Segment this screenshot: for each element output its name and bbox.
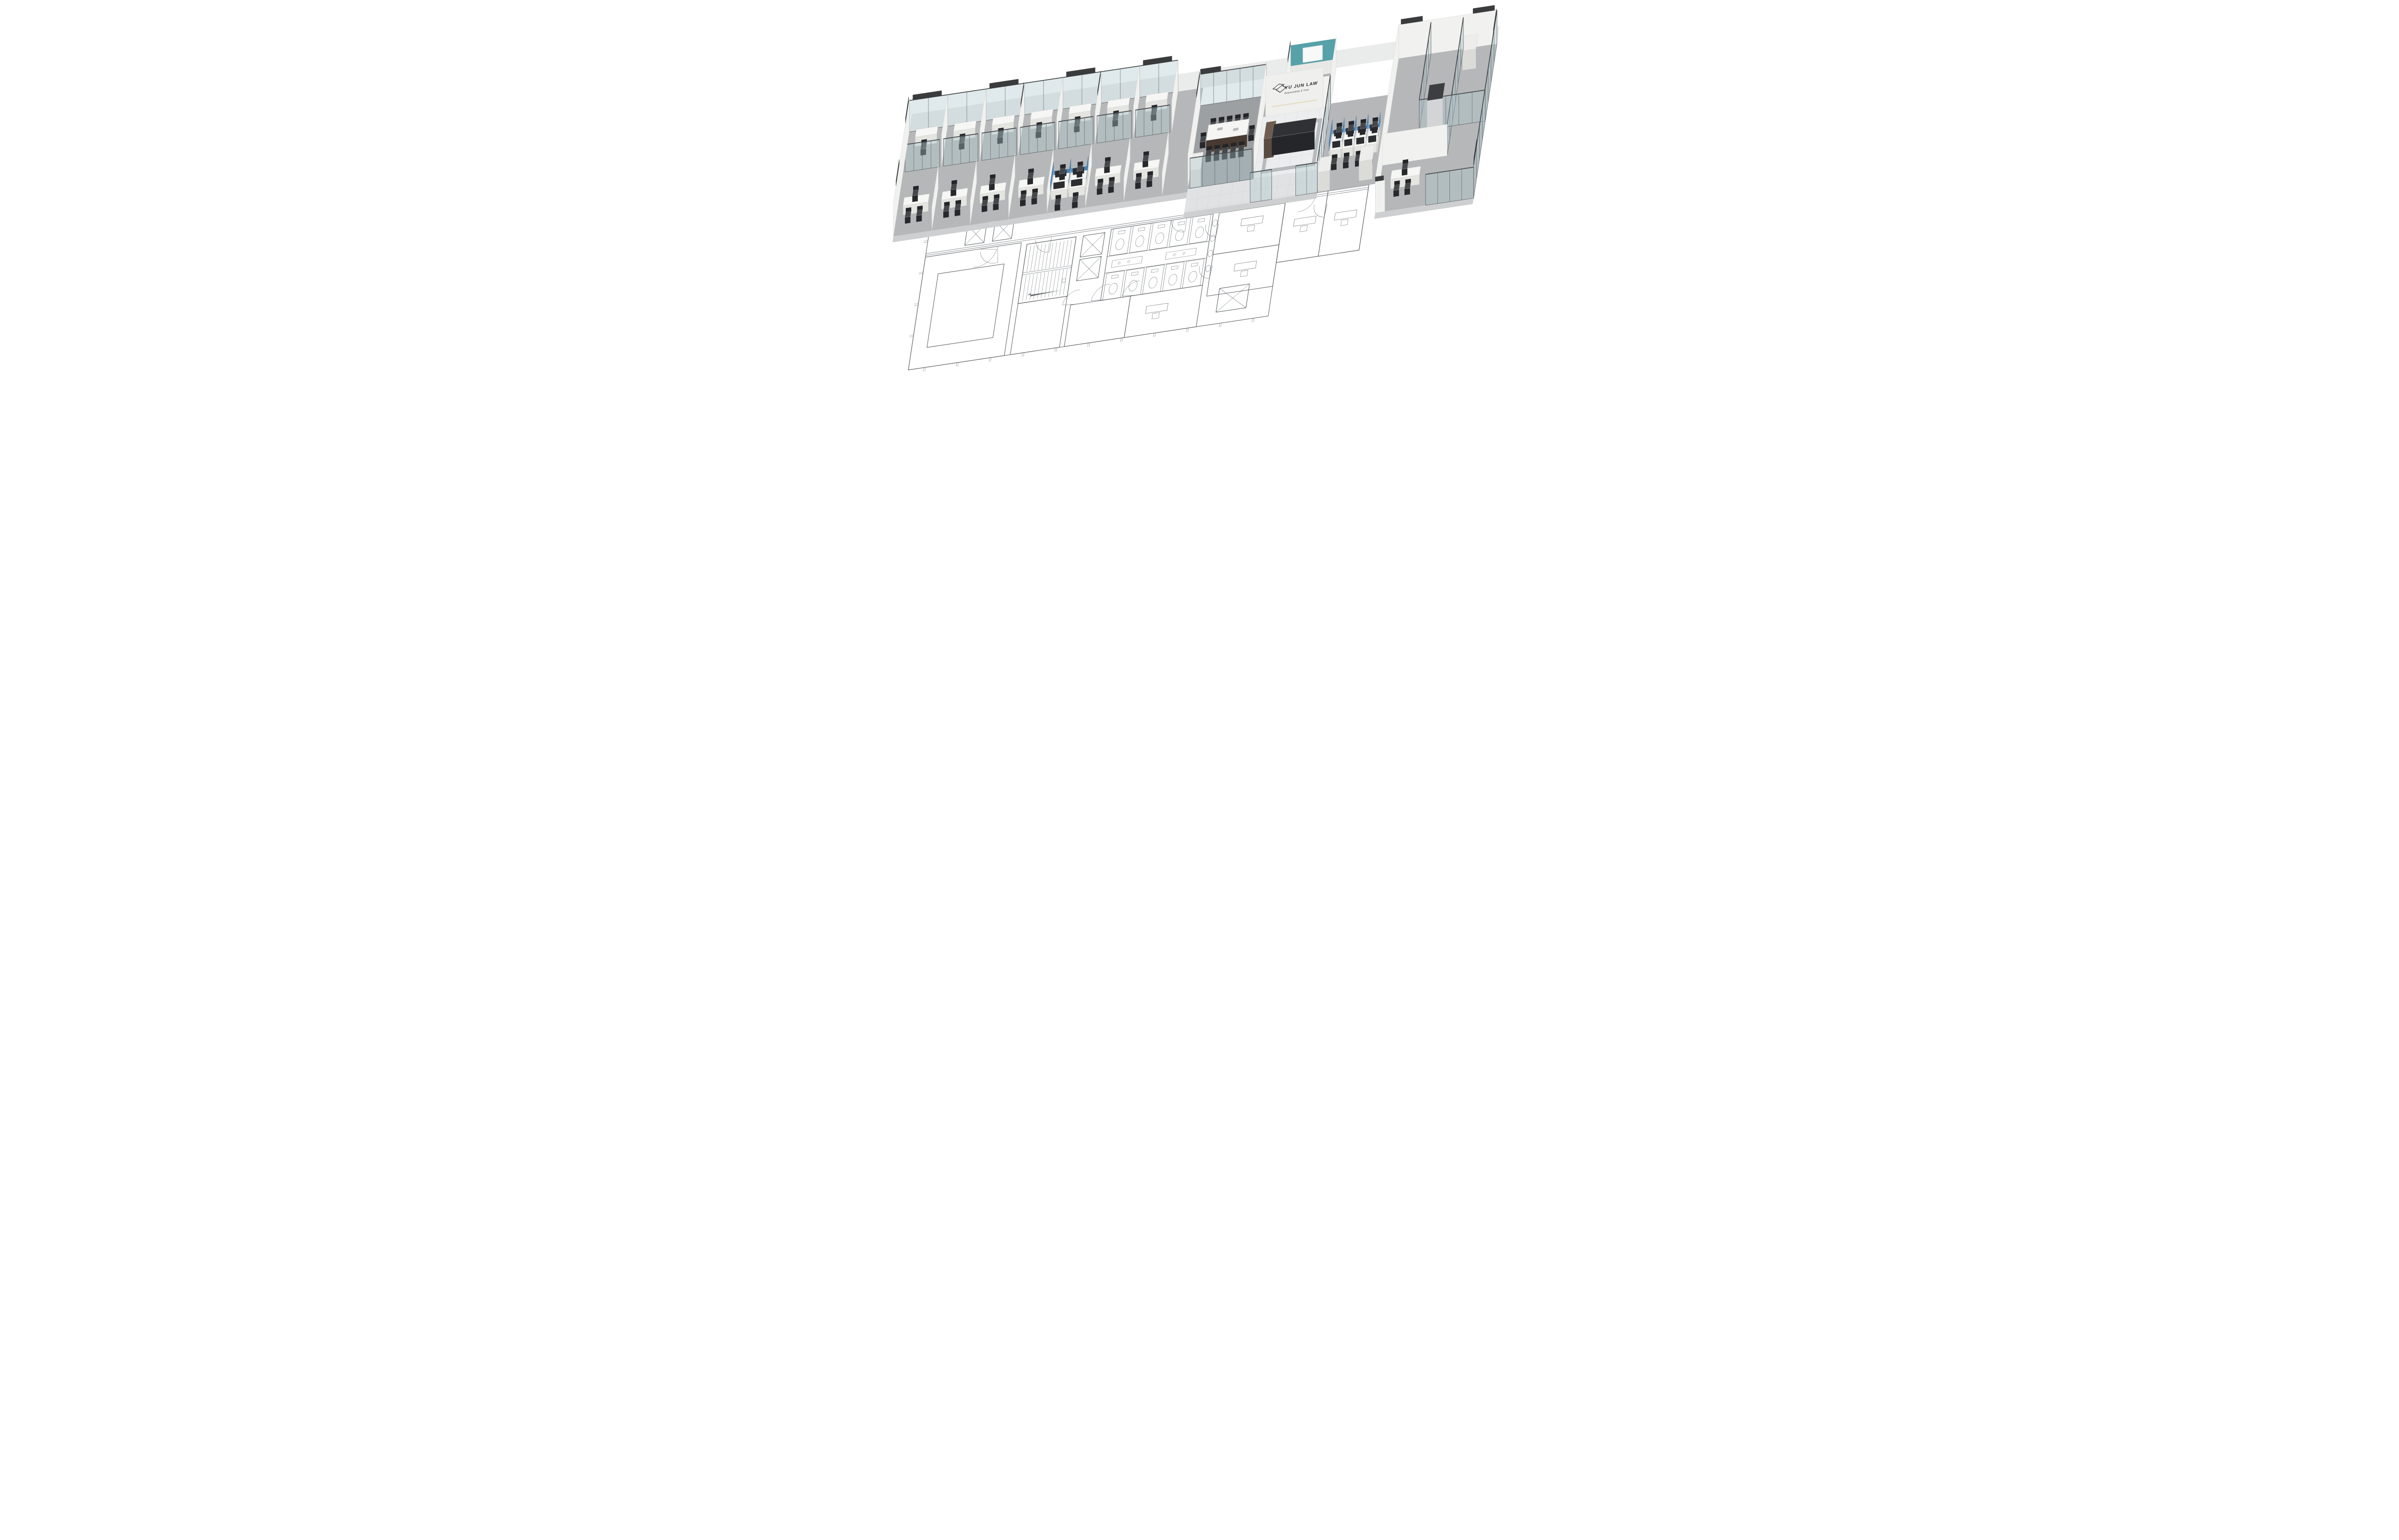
office-chair-top — [955, 204, 961, 210]
storage-cabinet-top — [1462, 34, 1478, 51]
office-chair-top — [993, 198, 999, 204]
office-chair-top — [1336, 126, 1342, 132]
office-chair-front — [1058, 173, 1066, 180]
office-chair-top — [1104, 161, 1110, 167]
office-chair-top — [1343, 156, 1349, 162]
office-chair-top — [943, 205, 950, 212]
office-chair-top — [1360, 123, 1366, 129]
monitor — [1355, 137, 1365, 144]
monitor — [1343, 139, 1353, 146]
office-chair-top — [982, 200, 988, 206]
office-chair-top — [1097, 182, 1103, 189]
office-chair-top — [1077, 165, 1083, 171]
office-chair-top — [1348, 125, 1354, 131]
page: YU JUN LAW Responsibility & Trust — [888, 0, 1511, 385]
office-chair-top — [1072, 196, 1078, 202]
office-chair-front — [1054, 204, 1061, 211]
office-chair-front — [954, 209, 962, 216]
office-chair-front — [1371, 126, 1378, 133]
office-chair-front — [1342, 161, 1350, 168]
office-floorplan-render: YU JUN LAW Responsibility & Trust — [888, 0, 1511, 385]
office-chair-front — [1199, 142, 1207, 149]
monitor — [1367, 135, 1377, 143]
office-chair-front — [950, 189, 957, 196]
office-chair-front — [1146, 180, 1153, 188]
office-chair-front — [915, 215, 923, 222]
office-chair-top — [1055, 199, 1061, 205]
office-chair-top — [1372, 121, 1378, 127]
office-chair-front — [1026, 178, 1034, 185]
office-chair-front — [1392, 190, 1400, 197]
office-chair-front — [1134, 182, 1142, 189]
storage-cabinet-top — [1318, 156, 1332, 172]
office-chair-top — [1393, 184, 1400, 190]
office-chair-front — [1019, 199, 1027, 206]
office-chair-front — [981, 205, 988, 212]
office-chair-top — [1027, 172, 1033, 178]
office-chair-front — [1107, 186, 1115, 193]
office-chair-top — [950, 184, 957, 190]
office-chair-top — [1200, 136, 1206, 142]
office-chair-top — [916, 210, 923, 216]
storage-cabinet-top — [1359, 145, 1375, 162]
office-chair-top — [1147, 175, 1153, 181]
office-chair-front — [988, 183, 996, 190]
office-chair-top — [912, 190, 918, 196]
office-chair-front — [1330, 163, 1338, 170]
office-chair-top — [1032, 192, 1038, 199]
office-chair-front — [911, 195, 919, 202]
office-chair-top — [1135, 177, 1141, 183]
office-chair-top — [1108, 181, 1115, 187]
office-chair-top — [1020, 194, 1026, 200]
office-chair-top — [1331, 158, 1337, 164]
office-chair-front — [1403, 188, 1411, 195]
monitor — [1331, 141, 1341, 148]
office-chair-top — [1059, 168, 1066, 174]
office-chair-front — [1347, 130, 1354, 137]
office-chair-top — [1404, 183, 1411, 189]
office-chair-front — [992, 203, 1000, 211]
office-chair-front — [1141, 160, 1149, 167]
office-chair-front — [1076, 170, 1083, 178]
office-chair-front — [1031, 198, 1038, 205]
office-chair-top — [989, 178, 995, 184]
office-chair-front — [1096, 188, 1104, 195]
office-chair-front — [1359, 128, 1366, 135]
dark-column-top — [1427, 83, 1445, 101]
office-chair-front — [1401, 168, 1409, 176]
office-chair-front — [904, 216, 912, 224]
office-chair-top — [1402, 163, 1408, 169]
office-chair-front — [1071, 201, 1079, 208]
office-chair-top — [1248, 129, 1255, 135]
office-chair-top — [1142, 155, 1149, 161]
office-chair-front — [1103, 166, 1111, 173]
office-chair-front — [1247, 134, 1255, 141]
office-chair-top — [905, 211, 911, 217]
office-chair-front — [942, 211, 950, 218]
office-chair-front — [1335, 131, 1342, 139]
